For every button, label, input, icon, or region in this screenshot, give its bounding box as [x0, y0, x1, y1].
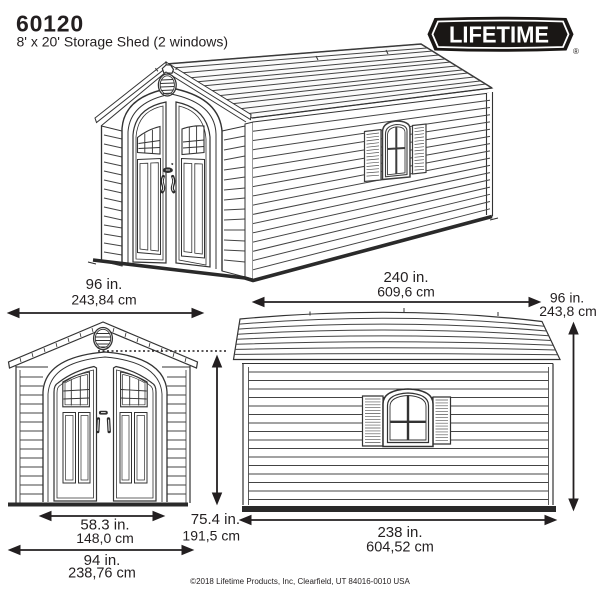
svg-text:191,5 cm: 191,5 cm	[182, 528, 240, 544]
svg-text:75.4 in.: 75.4 in.	[191, 511, 240, 528]
svg-text:©2018 Lifetime Products, Inc,: ©2018 Lifetime Products, Inc, Clearfield…	[190, 577, 410, 586]
svg-text:609,6 cm: 609,6 cm	[377, 284, 435, 300]
svg-text:243,8 cm: 243,8 cm	[539, 303, 597, 319]
svg-text:96 in.: 96 in.	[86, 276, 123, 293]
svg-text:8' x 20' Storage Shed (2 windo: 8' x 20' Storage Shed (2 windows)	[17, 34, 229, 50]
svg-text:604,52 cm: 604,52 cm	[366, 540, 434, 556]
svg-text:243,84 cm: 243,84 cm	[71, 292, 136, 308]
svg-text:238,76 cm: 238,76 cm	[68, 566, 136, 582]
svg-text:148,0 cm: 148,0 cm	[76, 530, 134, 546]
svg-text:LIFETIME: LIFETIME	[449, 22, 549, 48]
svg-text:®: ®	[573, 47, 579, 56]
svg-text:238 in.: 238 in.	[377, 524, 422, 541]
